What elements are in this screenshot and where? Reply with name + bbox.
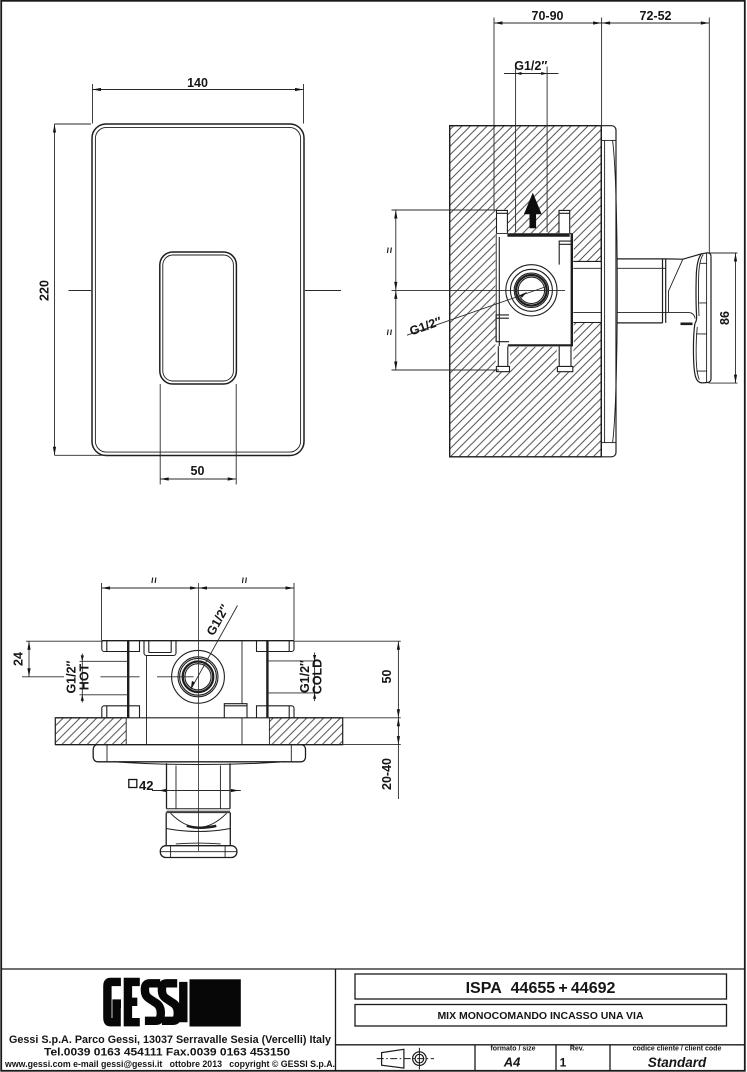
svg-text:24: 24 (12, 652, 26, 666)
svg-text:ISPA 44655 + 44692: ISPA 44655 + 44692 (466, 980, 616, 997)
svg-text:72-52: 72-52 (640, 9, 672, 23)
svg-text:42: 42 (139, 778, 153, 793)
svg-text:Rev.: Rev. (570, 1046, 584, 1053)
svg-text:G1/2″: G1/2″ (65, 660, 79, 693)
svg-text:codice cliente / client code: codice cliente / client code (633, 1046, 722, 1053)
svg-text:formato / size: formato / size (490, 1046, 535, 1053)
svg-text:Standard: Standard (648, 1055, 707, 1070)
svg-text:Gessi S.p.A. Parco Gessi, 1303: Gessi S.p.A. Parco Gessi, 13037 Serraval… (9, 1034, 332, 1046)
svg-text:140: 140 (187, 76, 208, 90)
svg-text:G1/2″: G1/2″ (514, 59, 547, 73)
svg-text:86: 86 (718, 311, 732, 325)
svg-text:A4: A4 (503, 1055, 521, 1070)
svg-text:Tel.0039 0163 454111 Fax.0039: Tel.0039 0163 454111 Fax.0039 0163 45315… (44, 1047, 290, 1059)
svg-text:www.gessi.com e-mail gessi@ges: www.gessi.com e-mail gessi@gessi.it otto… (4, 1059, 335, 1069)
svg-text:70-90: 70-90 (532, 9, 564, 23)
svg-text:1: 1 (560, 1056, 567, 1070)
svg-text:50: 50 (380, 670, 394, 684)
svg-text:20-40: 20-40 (380, 758, 394, 790)
svg-text:MIX MONOCOMANDO INCASSO UNA VI: MIX MONOCOMANDO INCASSO UNA VIA (437, 1010, 644, 1022)
svg-text:220: 220 (38, 280, 52, 301)
svg-text:COLD: COLD (311, 659, 325, 694)
svg-text:50: 50 (191, 464, 205, 478)
svg-text:HOT: HOT (78, 663, 92, 690)
